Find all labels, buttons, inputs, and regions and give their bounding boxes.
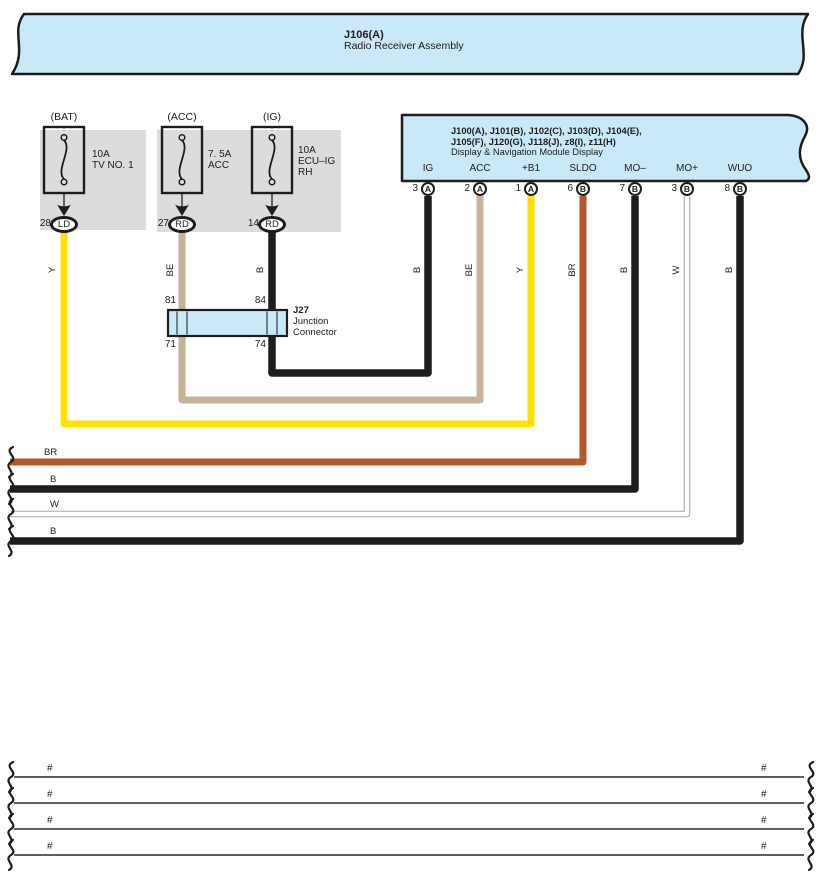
banner-name: Radio Receiver Assembly [344, 41, 464, 53]
fuse-acc-terminal-bottom [179, 179, 185, 185]
module-pin-acc-terminal-number: 2 [444, 183, 470, 194]
junction-pin-81: 81 [156, 295, 176, 306]
module-pin-sldo-connector-circle: B [576, 182, 590, 196]
wire-b-6-break-symbol [8, 526, 13, 556]
fuse-bat-system-label: (BAT) [24, 112, 104, 124]
wire-br-3-break-symbol [8, 447, 13, 477]
wire-be-1-color-label-0: BE [166, 264, 176, 277]
fuse-bat-terminal-number: 28 [21, 218, 51, 229]
fuse-ig-name-line-0: ECU–IG [298, 156, 335, 167]
wire-y-0-color-label-1: Y [516, 267, 526, 273]
fuse-ig-terminal-bottom [269, 179, 275, 185]
wire-b-4-color-label-1: B [50, 475, 56, 485]
fuse-acc-system-label: (ACC) [142, 112, 222, 124]
fuse-acc-rating: 7. 5A [208, 149, 231, 160]
fuse-ig-connector-pin: RD [258, 216, 286, 233]
junction-pin-84: 84 [246, 295, 266, 306]
fuse-bat-terminal-top [61, 135, 67, 141]
wiring-diagram: J106(A) Radio Receiver Assembly J100(A),… [0, 0, 818, 877]
module-pin-ig-label: IG [398, 163, 458, 174]
fuse-acc-terminal-number: 27 [139, 218, 169, 229]
module-pin-b1-label: +B1 [501, 163, 561, 174]
wire-b-6-color-label-1: B [50, 527, 56, 537]
wire-b-4 [10, 196, 635, 489]
fuse-ig-system-label: (IG) [232, 112, 312, 124]
module-pin-wuo-label: WUO [710, 163, 770, 174]
continuation-row-1-left-label: # [47, 763, 53, 774]
fuse-acc-terminal-top [179, 135, 185, 141]
fuse-ig-name-line-1: RH [298, 167, 312, 178]
fuse-acc-connector-pin: RD [168, 216, 196, 233]
wire-y-0-color-label-0: Y [48, 267, 58, 273]
module-pin-wuo-connector-circle: B [733, 182, 747, 196]
module-pin-ig-connector-circle: A [421, 182, 435, 196]
junction-code: J27 [293, 306, 309, 316]
wire-be-1-color-label-1: BE [465, 264, 475, 277]
module-pin-sldo-label: SLDO [553, 163, 613, 174]
continuation-row-2-left-label: # [47, 789, 53, 800]
junction-name-line1: Junction [293, 317, 328, 327]
continuation-row-3-left-label: # [47, 815, 53, 826]
continuation-row-2-right-label: # [761, 789, 767, 800]
fuse-ig-terminal-top [269, 135, 275, 141]
wire-w-5-color-label-1: W [50, 500, 59, 510]
continuation-row-3-right-label: # [761, 815, 767, 826]
module-title-line2: J105(F), J120(G), J118(J), z8(I), z11(H) [451, 137, 616, 147]
fuse-bat-terminal-bottom [61, 179, 67, 185]
module-subtitle: Display & Navigation Module Display [451, 147, 603, 157]
module-title-line1: J100(A), J101(B), J102(C), J103(D), J104… [451, 126, 642, 136]
module-pin-mo-label: MO– [605, 163, 665, 174]
module-pin-b1-terminal-number: 1 [495, 183, 521, 194]
module-pin-b1-connector-circle: A [524, 182, 538, 196]
wire-b-2-color-label-1: B [413, 267, 423, 273]
fuse-panel-bat [40, 130, 146, 230]
module-pin-mo-connector-circle: B [628, 182, 642, 196]
wire-br-3-color-label-1: BR [44, 448, 57, 458]
junction-pin-71: 71 [156, 339, 176, 350]
module-pin-mo-terminal-number: 7 [599, 183, 625, 194]
module-pin-mo-connector-circle: B [680, 182, 694, 196]
diagram-shapes-layer [0, 0, 818, 877]
fuse-acc-name-line-0: ACC [208, 160, 229, 171]
wire-br-3-color-label-0: BR [568, 263, 578, 276]
junction-connector-box [168, 310, 287, 336]
module-pin-sldo-terminal-number: 6 [547, 183, 573, 194]
fuse-bat-connector-pin: LD [50, 216, 78, 233]
junction-pin-74: 74 [246, 339, 266, 350]
wire-b-4-color-label-0: B [620, 267, 630, 273]
fuse-bat-name-line-0: TV NO. 1 [92, 160, 134, 171]
module-pin-acc-connector-circle: A [473, 182, 487, 196]
module-pin-ig-terminal-number: 3 [392, 183, 418, 194]
wire-w-5-color-label-0: W [672, 266, 682, 275]
fuse-ig-terminal-number: 14 [229, 218, 259, 229]
module-pin-mo-terminal-number: 3 [651, 183, 677, 194]
module-pin-mo-label: MO+ [657, 163, 717, 174]
fuse-ig-rating: 10A [298, 145, 316, 156]
continuation-row-4-left-label: # [47, 841, 53, 852]
fuse-bat-rating: 10A [92, 149, 110, 160]
continuation-row-4-right-label: # [761, 841, 767, 852]
continuation-row-1-right-label: # [761, 763, 767, 774]
module-pin-wuo-terminal-number: 8 [704, 183, 730, 194]
continuation-row-4-left-break-symbol [8, 840, 13, 870]
wire-b-6-color-label-0: B [725, 267, 735, 273]
continuation-row-4-right-break-symbol [808, 840, 813, 870]
junction-name-line2: Connector [293, 328, 337, 338]
wire-b-2-color-label-0: B [256, 267, 266, 273]
